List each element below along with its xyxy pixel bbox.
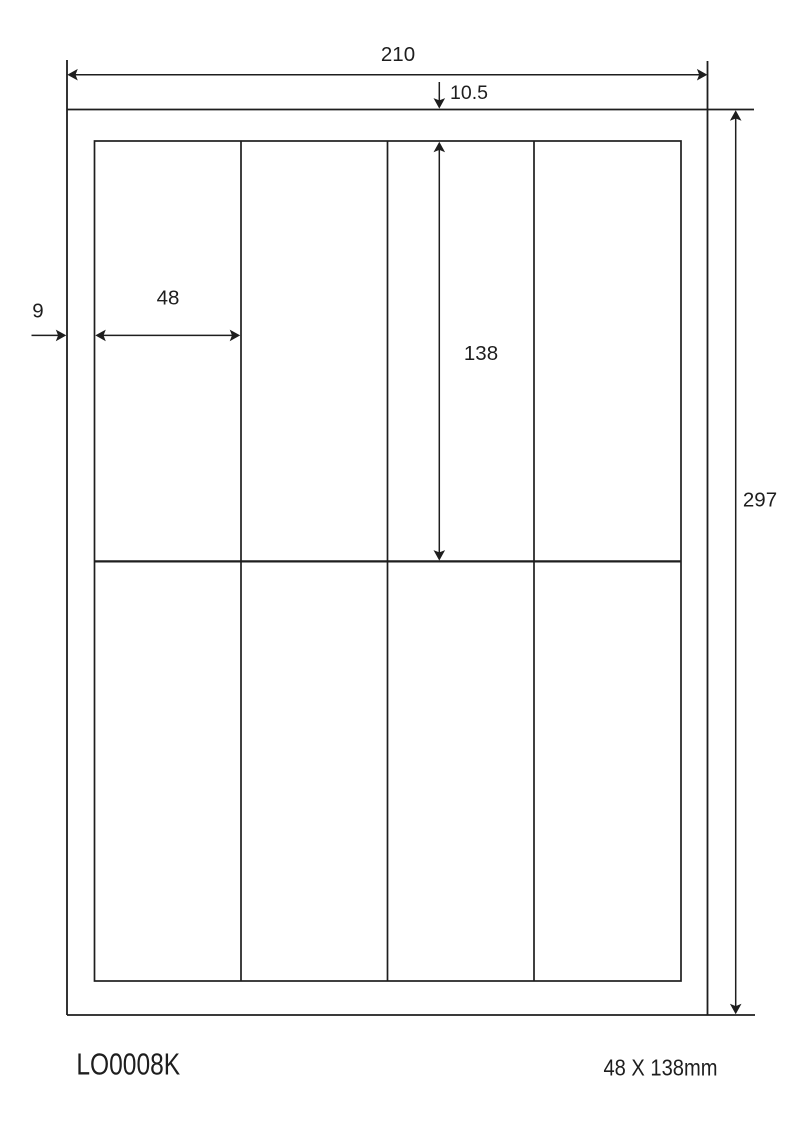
svg-text:297: 297 bbox=[743, 488, 777, 511]
svg-text:10.5: 10.5 bbox=[450, 82, 488, 104]
svg-text:48 X 138mm: 48 X 138mm bbox=[604, 1054, 718, 1081]
svg-text:48: 48 bbox=[157, 287, 180, 310]
svg-text:210: 210 bbox=[381, 43, 415, 66]
svg-text:LO0008K: LO0008K bbox=[76, 1047, 180, 1081]
svg-text:138: 138 bbox=[464, 342, 498, 365]
svg-text:9: 9 bbox=[32, 300, 43, 323]
